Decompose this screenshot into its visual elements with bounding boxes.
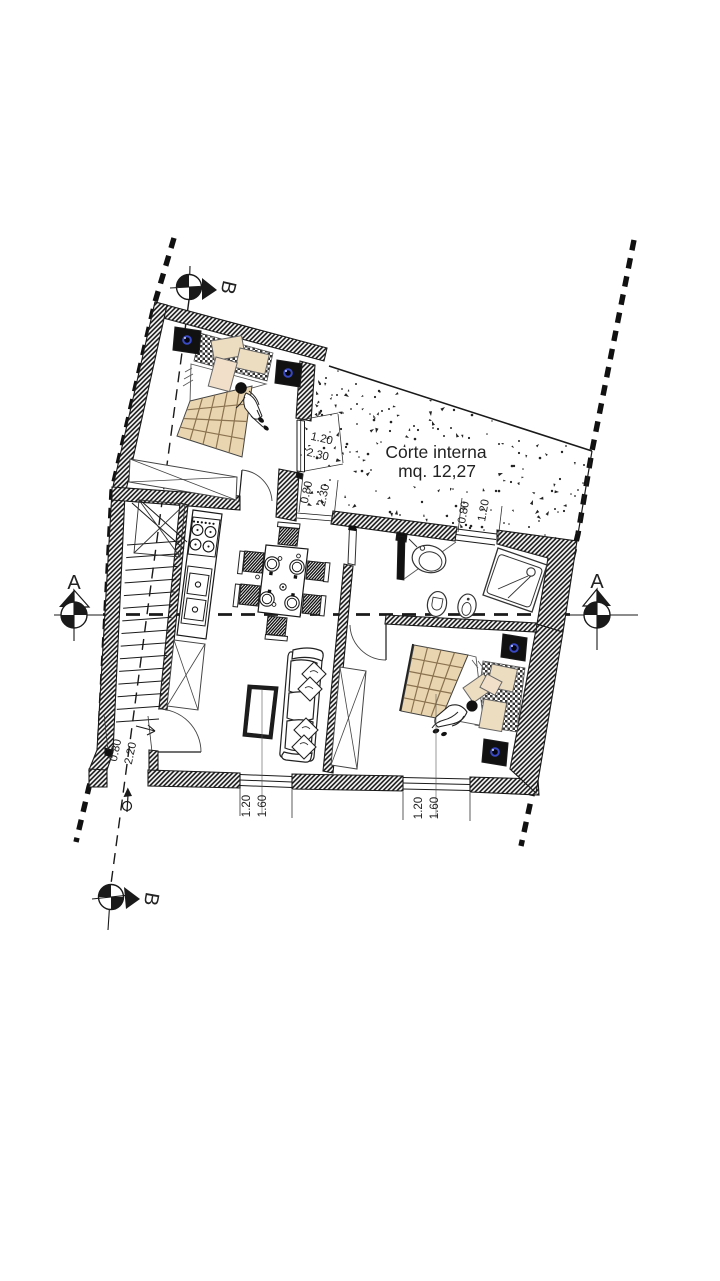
svg-text:Corte interna: Corte interna [385, 442, 486, 462]
svg-text:1.60: 1.60 [257, 795, 269, 817]
svg-text:mq. 12,27: mq. 12,27 [398, 461, 476, 481]
svg-text:1.20: 1.20 [241, 795, 253, 817]
svg-text:1.20: 1.20 [413, 797, 425, 819]
svg-text:1.60: 1.60 [429, 797, 441, 819]
